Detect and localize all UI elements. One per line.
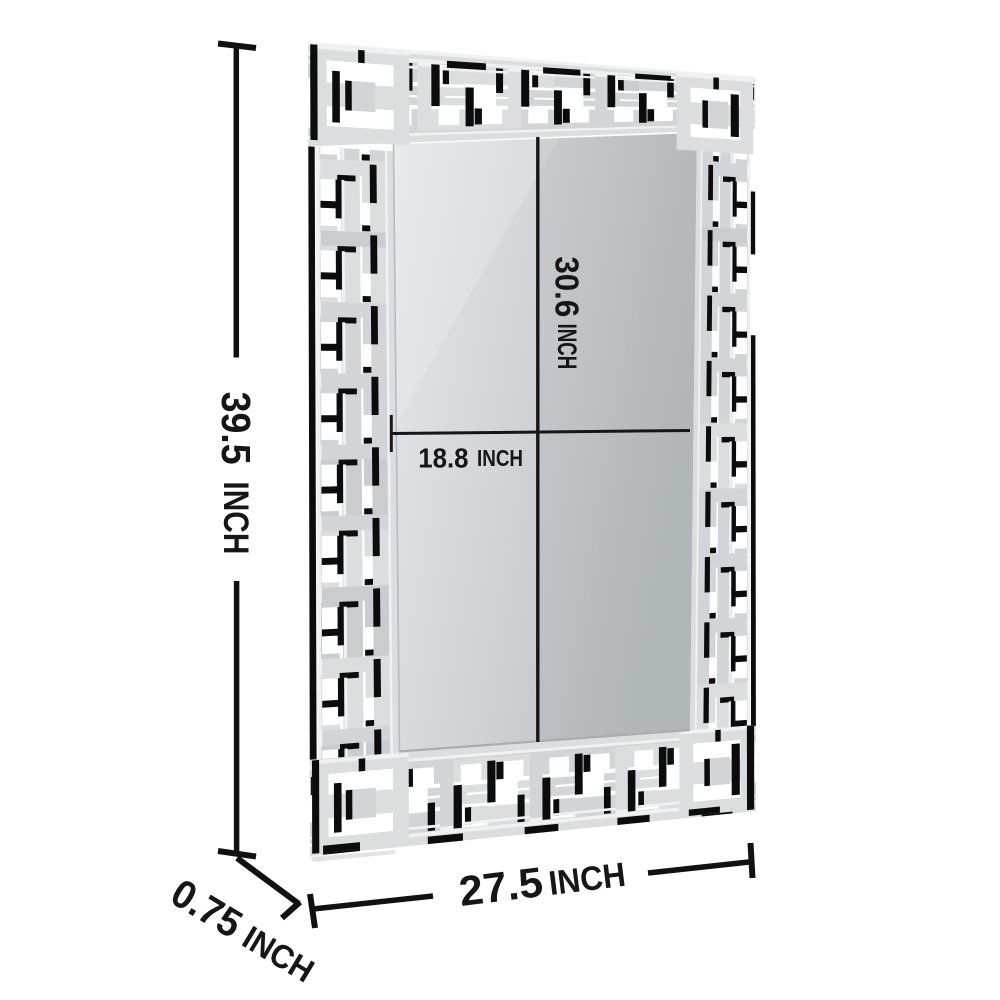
svg-text:0.75: 0.75 — [163, 871, 249, 947]
svg-text:39.5: 39.5 — [213, 392, 259, 465]
svg-text:INCH: INCH — [216, 481, 255, 554]
svg-text:30.6: 30.6 — [548, 256, 585, 317]
svg-text:INCH: INCH — [236, 919, 320, 990]
svg-text:INCH: INCH — [477, 445, 523, 471]
svg-text:18.8: 18.8 — [418, 443, 468, 474]
svg-text:27.5: 27.5 — [456, 858, 545, 915]
svg-text:INCH: INCH — [552, 324, 582, 370]
svg-text:INCH: INCH — [547, 856, 628, 903]
